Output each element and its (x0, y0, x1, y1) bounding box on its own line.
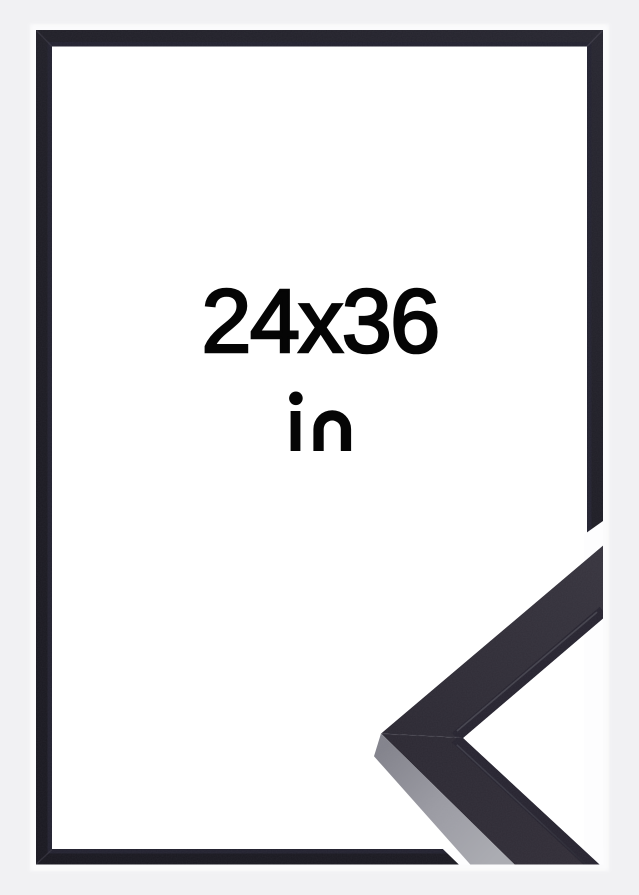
svg-text:24x36: 24x36 (201, 272, 438, 372)
